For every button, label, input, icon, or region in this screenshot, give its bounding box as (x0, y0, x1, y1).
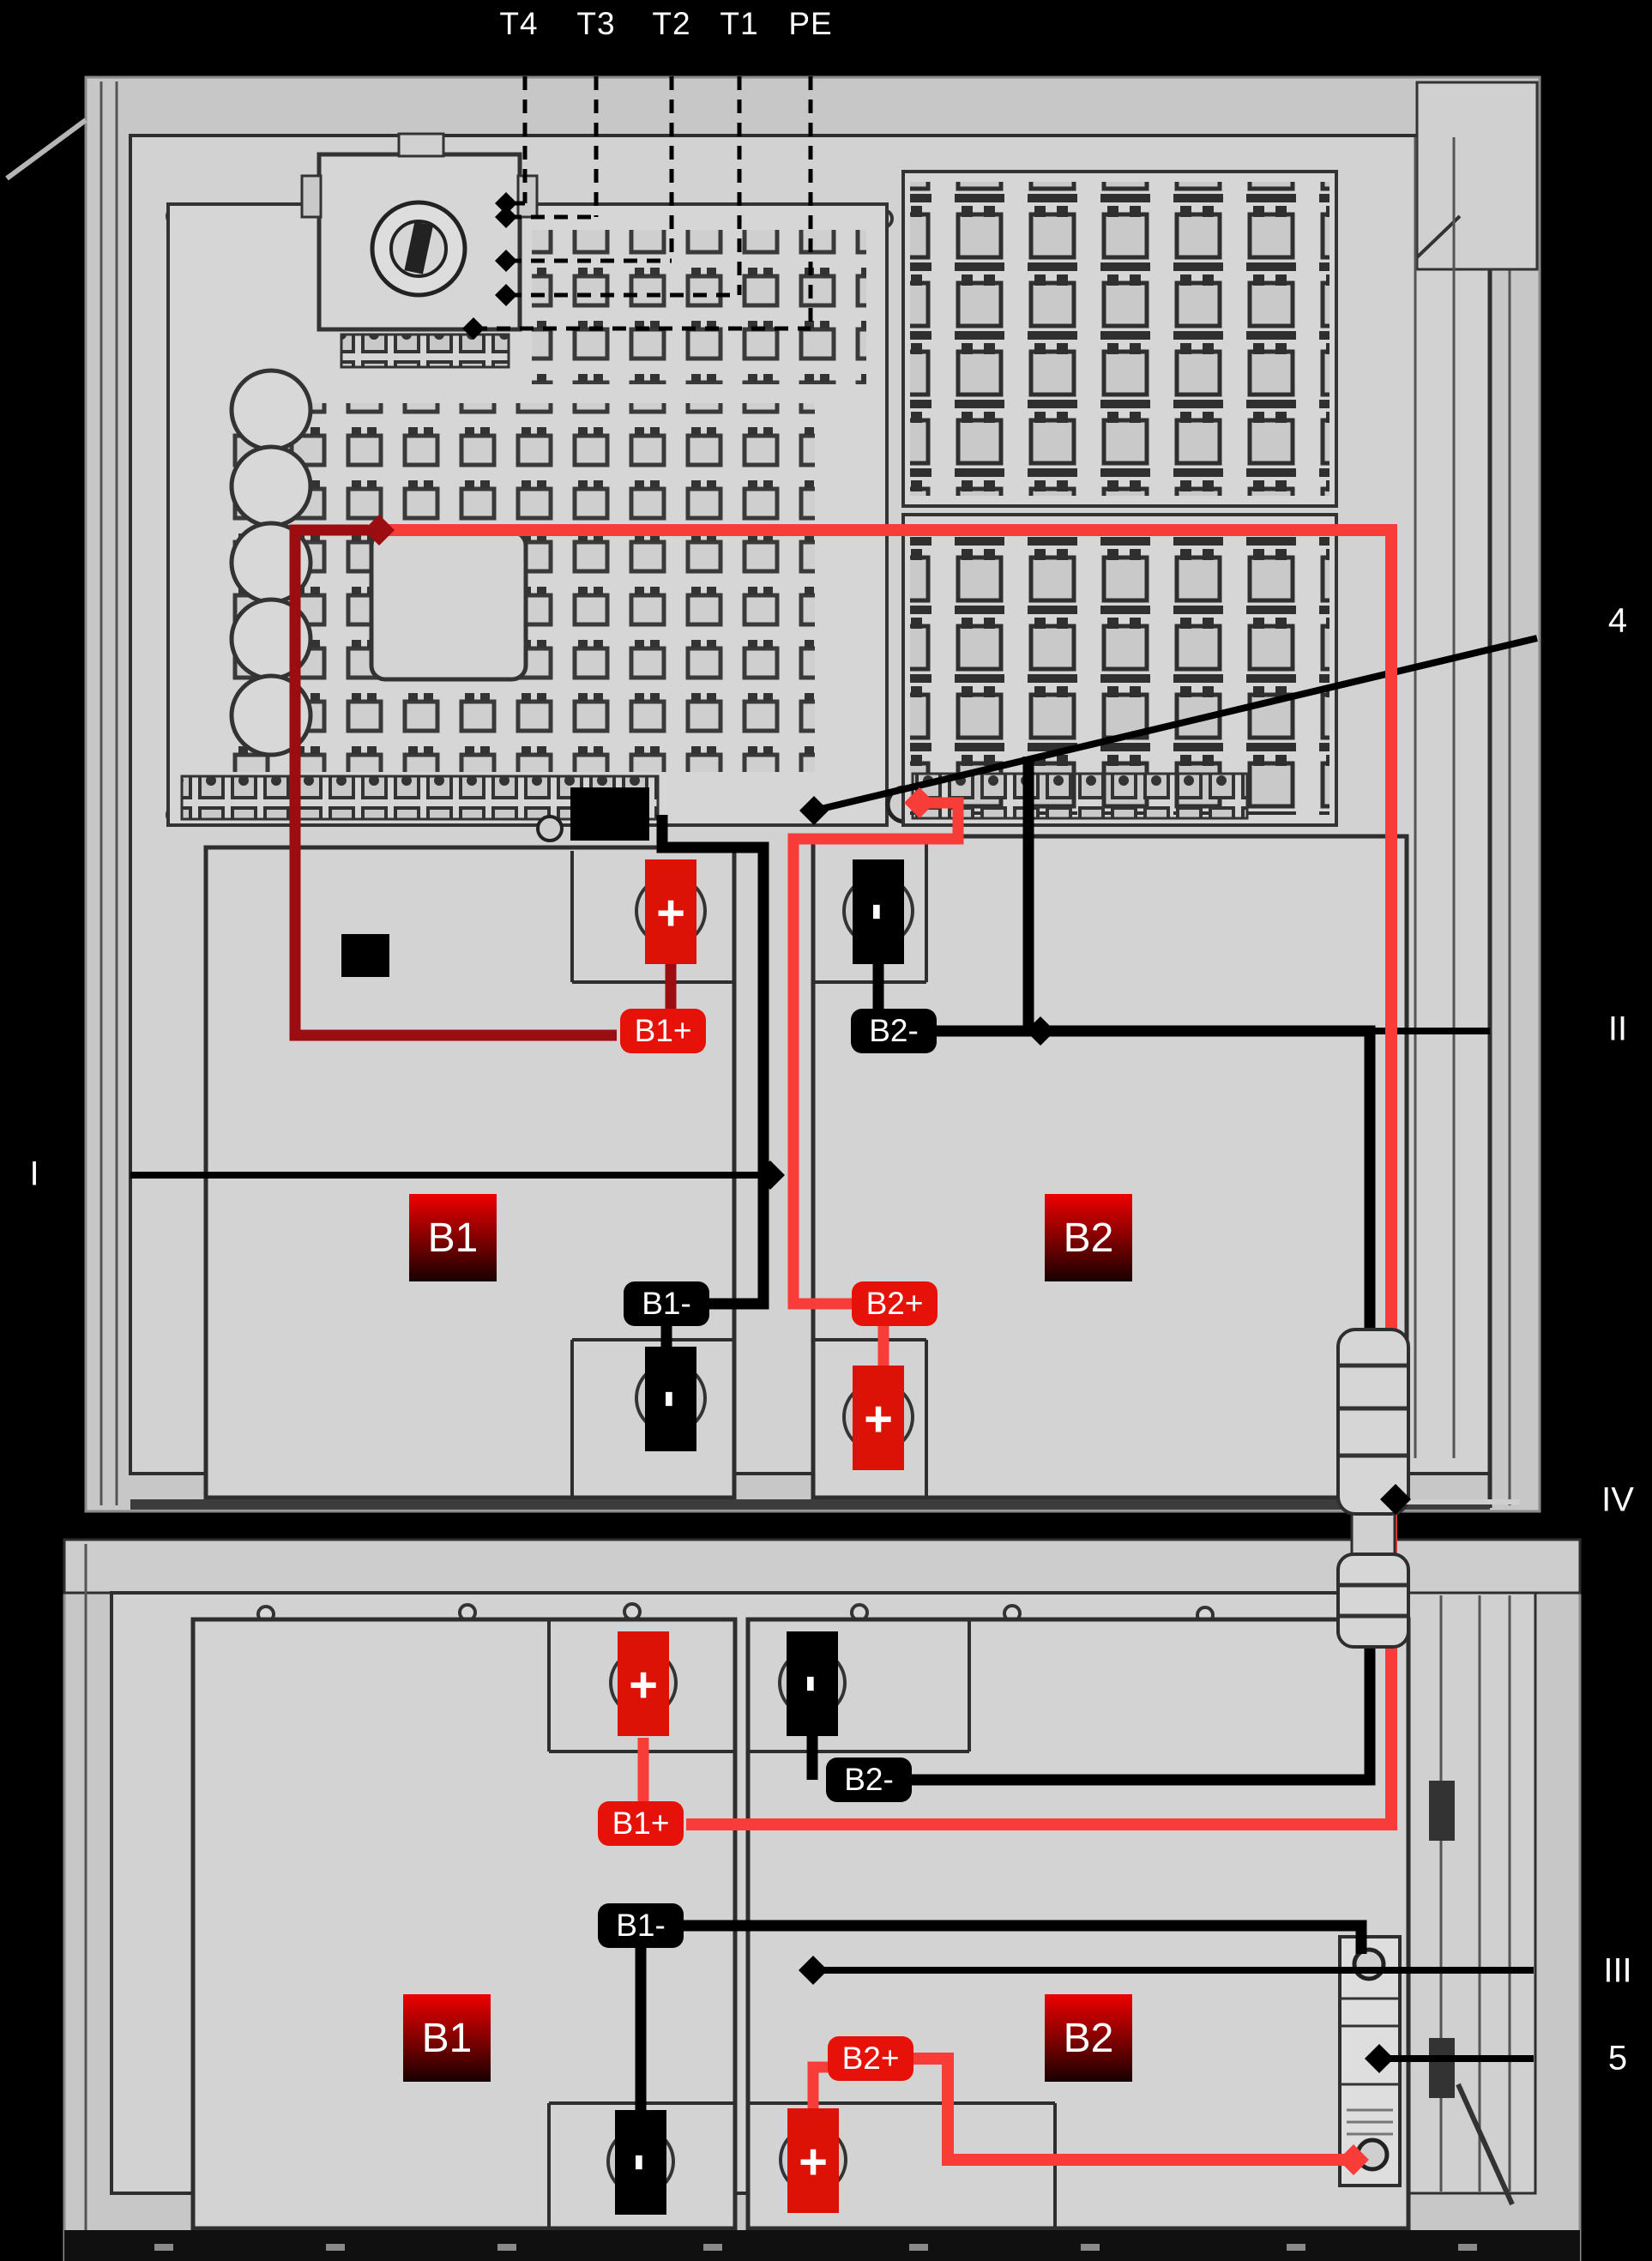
sign-b2-plus-top: + (864, 1391, 893, 1447)
board-module (371, 532, 526, 679)
bottom-strip (64, 2230, 1580, 2261)
top-cabinet (7, 77, 1540, 1511)
capacitor (232, 447, 311, 526)
callout-III: III (1603, 1952, 1631, 1991)
hinge-bracket (1429, 1781, 1455, 1841)
sign-b2-plus-bottom: + (799, 2134, 828, 2190)
tag-bottom-b1-plus: B1+ (598, 1801, 684, 1846)
sign-b1-plus-top: + (656, 885, 685, 941)
sign-b1-plus-bottom: + (629, 1657, 658, 1713)
diagram-linework: + - - + + - - + (0, 0, 1652, 2261)
terminal-label-t3: T3 (576, 6, 615, 42)
right-panel (1408, 1593, 1535, 2193)
relay-board-upper (903, 172, 1336, 506)
callout-I: I (29, 1155, 39, 1194)
battery-label-bottom-b2: B2 (1045, 1994, 1132, 2082)
callout-II: II (1608, 1010, 1627, 1049)
control-board (168, 204, 922, 841)
connector-block (570, 787, 649, 841)
door-edge-line (7, 120, 86, 178)
sign-b1-minus-top: - (642, 1390, 704, 1408)
terminal-label-pe: PE (788, 6, 832, 42)
terminal-label-t4: T4 (499, 6, 538, 42)
wiring-diagram: + - - + + - - + T4 T3 T2 T1 PE 4 I II IV… (0, 0, 1652, 2261)
tag-bottom-b2-minus: B2- (826, 1758, 912, 1802)
terminal-label-t1: T1 (720, 6, 758, 42)
callout-4: 4 (1608, 602, 1627, 641)
tag-top-b1-minus: B1- (624, 1281, 709, 1326)
tag-bottom-b1-minus: B1- (598, 1903, 684, 1948)
battery-label-bottom-b1: B1 (403, 1994, 491, 2082)
cabinet-shelf (130, 1499, 1490, 1510)
capacitor (232, 371, 311, 449)
breaker-screw-top (1354, 1950, 1384, 1979)
screw (624, 1604, 640, 1619)
terminal-label-t2: T2 (652, 6, 690, 42)
tag-top-b1-plus: B1+ (620, 1009, 706, 1053)
sign-b2-minus-bottom: - (784, 1674, 846, 1692)
callout-5: 5 (1608, 2040, 1627, 2078)
tag-bottom-b2-plus: B2+ (828, 2036, 913, 2081)
conduit-boot-lower (1338, 1554, 1408, 1647)
tag-top-b2-minus: B2- (851, 1009, 937, 1053)
sign-b2-minus-top: - (850, 902, 912, 920)
switch-terminals (341, 335, 509, 367)
relay-board-lower (903, 515, 1336, 825)
callout-IV: IV (1601, 1481, 1634, 1520)
cable-bracket (341, 934, 389, 977)
battery-label-top-b1: B1 (409, 1194, 497, 1281)
tag-top-b2-plus: B2+ (852, 1281, 938, 1326)
battery-label-top-b2: B2 (1045, 1194, 1132, 1281)
screw (538, 817, 562, 841)
hinge-bracket (1429, 2038, 1455, 2098)
sign-b1-minus-bottom: - (612, 2153, 674, 2171)
